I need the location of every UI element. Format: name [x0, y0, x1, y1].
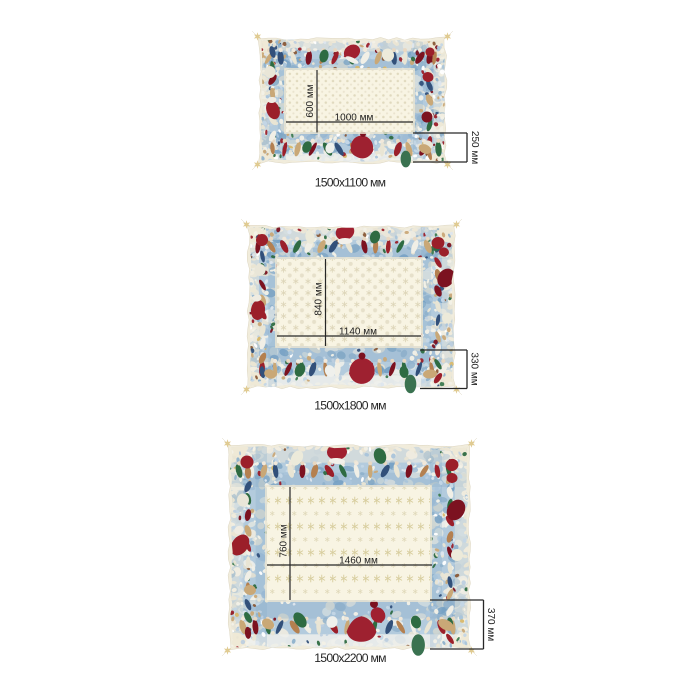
svg-text:840 мм: 840 мм — [314, 282, 325, 315]
svg-text:1140 мм: 1140 мм — [339, 327, 377, 338]
svg-text:1500x1800 мм: 1500x1800 мм — [314, 399, 386, 413]
svg-text:1500x2200 мм: 1500x2200 мм — [314, 651, 386, 665]
svg-text:760 мм: 760 мм — [279, 524, 290, 557]
svg-text:1000 мм: 1000 мм — [335, 113, 374, 124]
svg-text:1500x1100 мм: 1500x1100 мм — [315, 176, 386, 190]
svg-text:600 мм: 600 мм — [305, 84, 316, 117]
svg-text:250 мм: 250 мм — [469, 131, 480, 164]
svg-text:370 мм: 370 мм — [485, 608, 496, 641]
svg-text:1460 мм: 1460 мм — [339, 555, 378, 566]
svg-text:330 мм: 330 мм — [468, 352, 479, 385]
